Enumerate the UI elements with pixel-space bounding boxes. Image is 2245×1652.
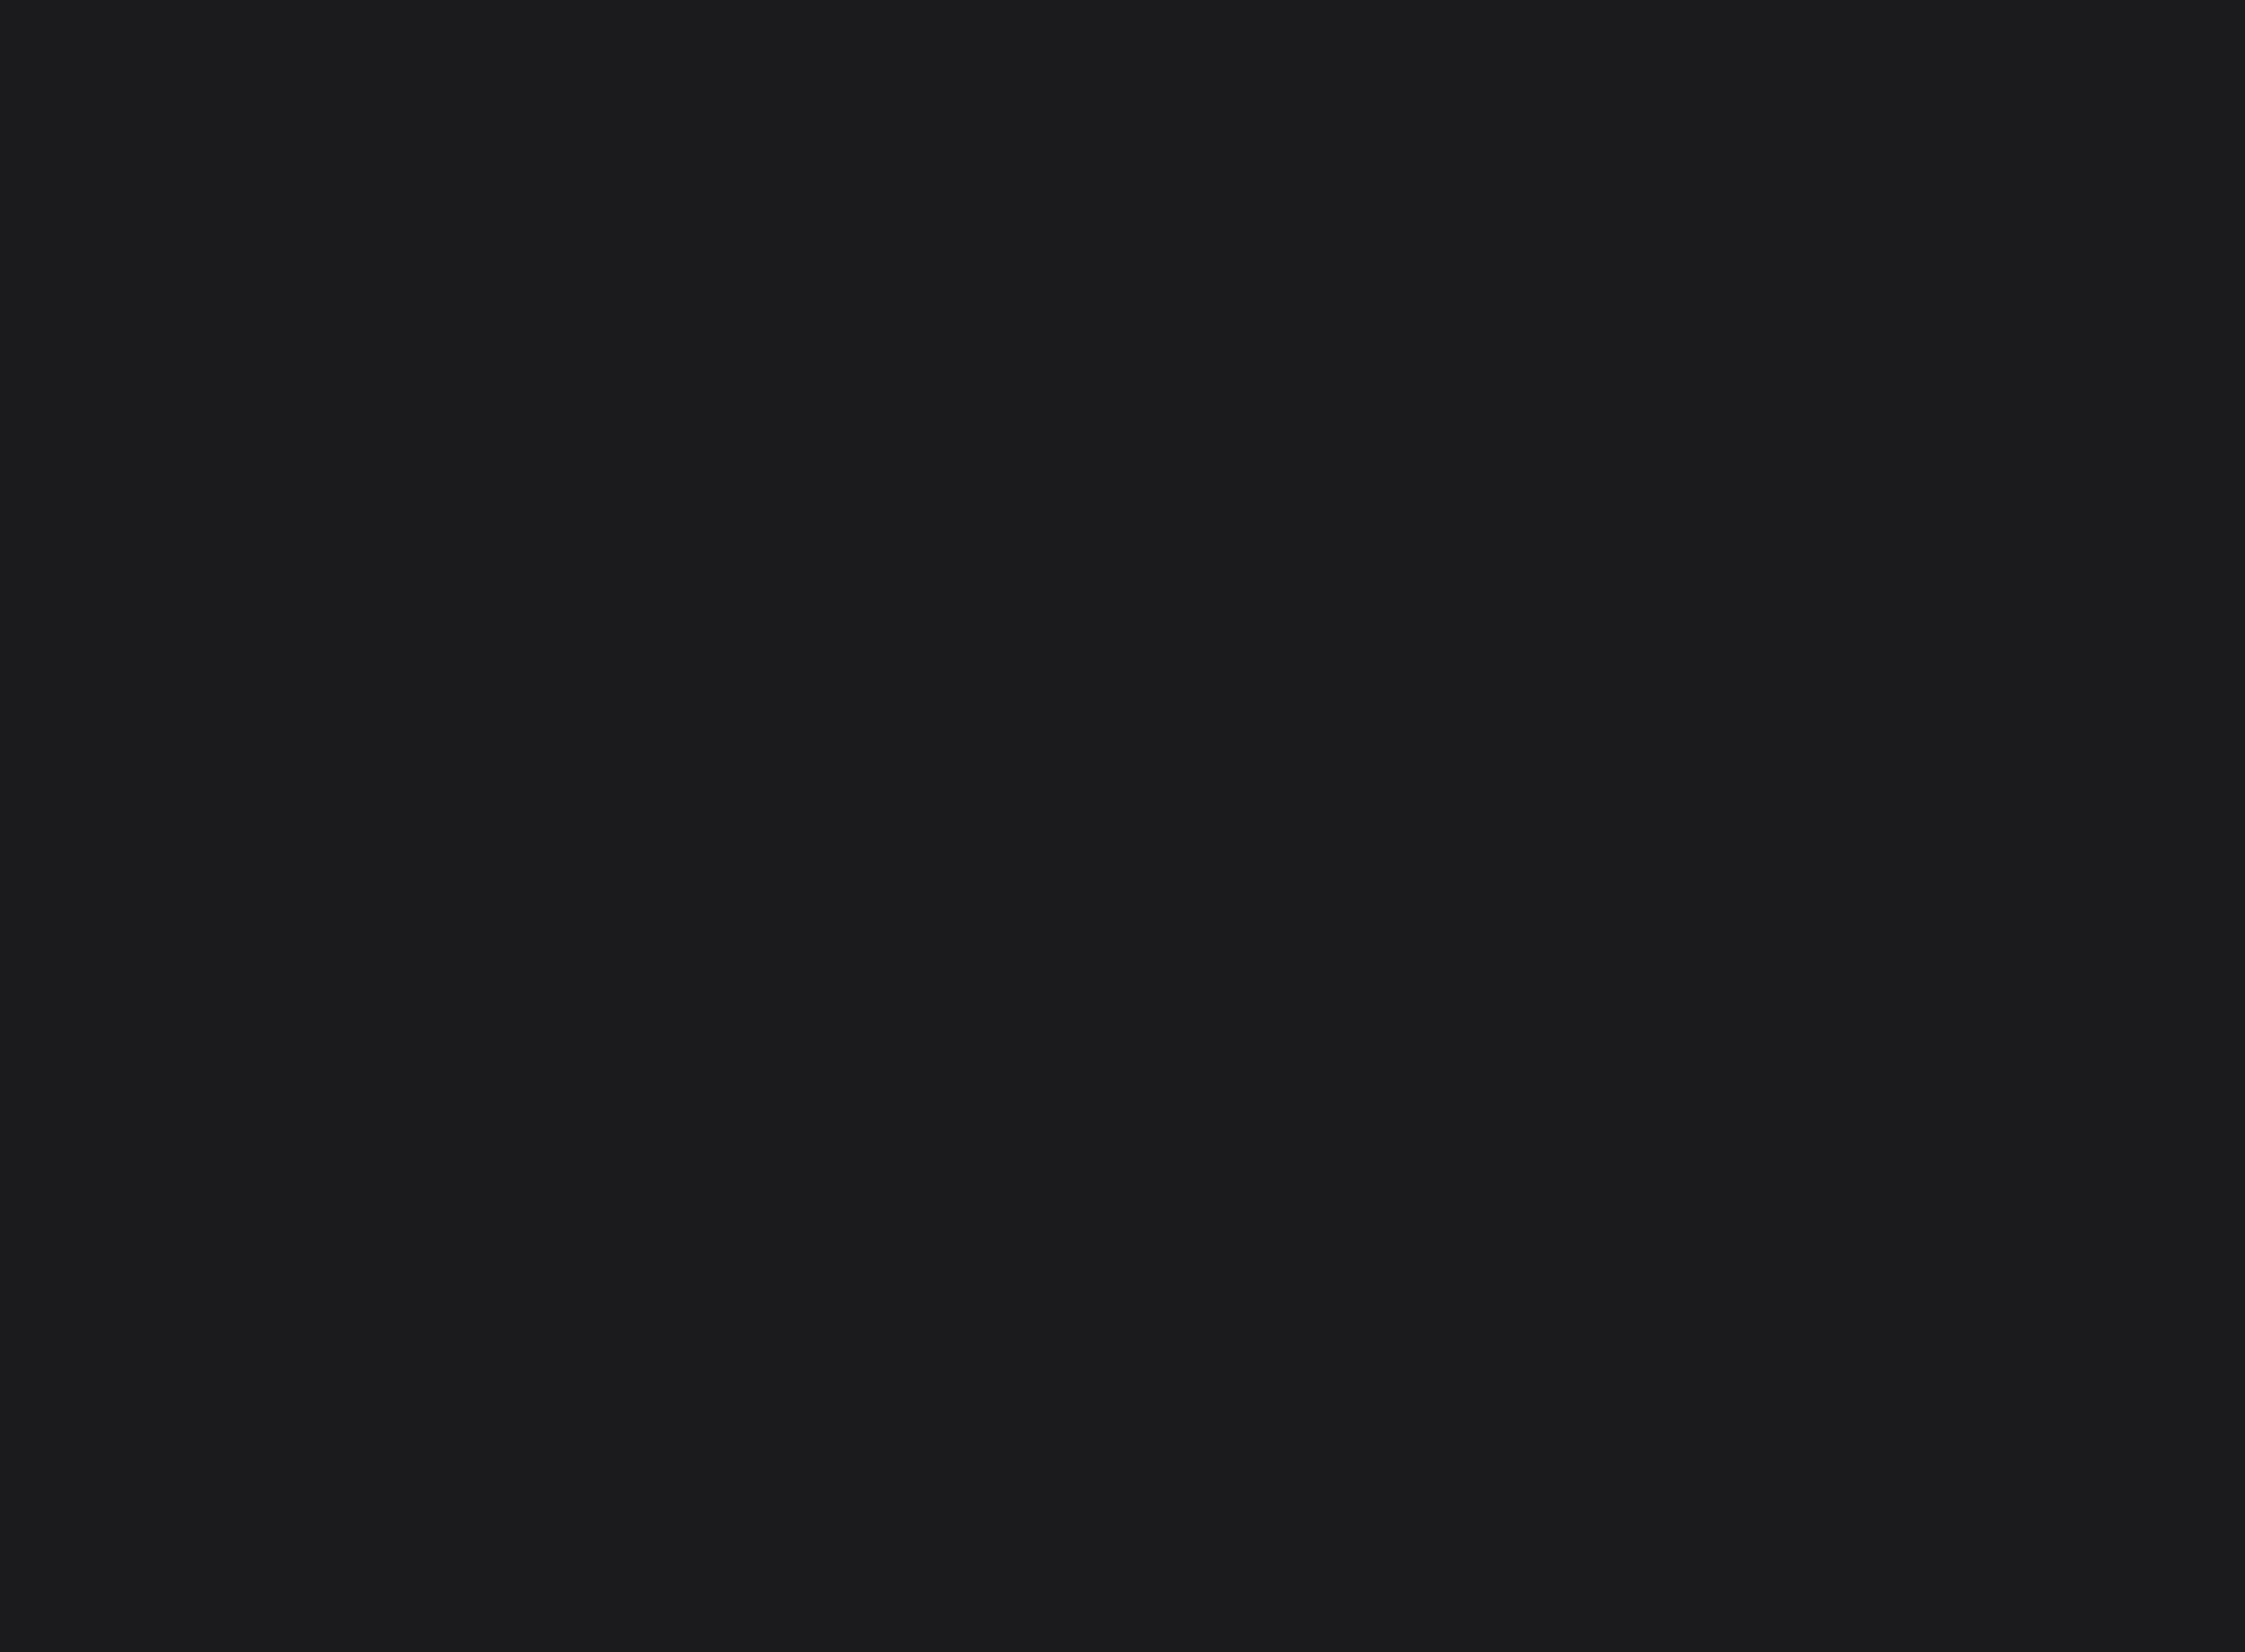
site-plan-rendering [0,0,2245,1652]
viewport [0,0,2245,1652]
